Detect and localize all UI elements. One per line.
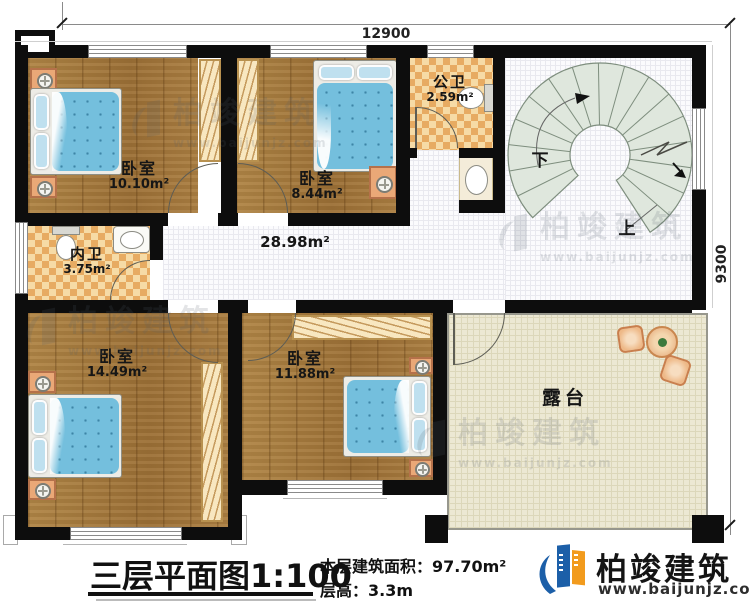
dimension-top-value: 12900 [336, 26, 436, 42]
floor-height-value: 3.3m [368, 581, 413, 600]
room-name: 内卫 [47, 246, 127, 263]
wall-hall-bottom-c [296, 300, 433, 313]
brand-url: www.baijunjz.com [598, 580, 750, 598]
floor-height-line: 层高：3.3m [320, 577, 413, 601]
room-area: 11.88m² [255, 368, 355, 383]
floor-area-line: 本层建筑面积：97.70m² [320, 553, 506, 577]
terrace-post-right [692, 515, 724, 543]
floor-area-value: 97.70m² [432, 557, 506, 576]
dimension-line-top [62, 24, 730, 25]
window-top-2 [270, 45, 367, 58]
eave-line-right [712, 45, 713, 308]
window-sill-bottom-mid [283, 498, 387, 499]
room-name: 露台 [515, 388, 615, 410]
wall-hall-bottom-e [505, 300, 692, 313]
wall-niche-bottom [459, 200, 505, 213]
wardrobe [292, 315, 432, 340]
nightstand [28, 371, 56, 393]
wall-hall-bottom-a [15, 300, 168, 313]
room-name: 卧室 [89, 160, 189, 178]
window-right-stair [692, 108, 706, 190]
wardrobe [201, 362, 223, 522]
dimension-ext-top-left [62, 2, 63, 30]
floor-height-label: 层高： [320, 581, 368, 600]
toilet [52, 226, 80, 235]
bed [343, 376, 431, 457]
nightstand [369, 166, 397, 199]
room-area: 2.59m² [410, 91, 490, 105]
room-area: 14.49m² [67, 366, 167, 381]
room-area: 10.10m² [89, 178, 189, 193]
room-area: 8.44m² [267, 188, 367, 203]
window-top-bath [427, 45, 474, 58]
label-terrace: 露台 [515, 388, 615, 410]
window-sill-bottom-left [63, 544, 187, 545]
wall-public-bath-bottom-a [408, 148, 417, 158]
label-public-bath: 公卫 2.59m² [410, 74, 490, 105]
dimension-right-value: 9300 [714, 236, 730, 292]
wall-mid-horizontal-a [15, 213, 168, 226]
wall-bedroom-bm-bottom-a [242, 480, 287, 495]
wardrobe [237, 59, 259, 162]
wall-bedroom2-east [396, 58, 410, 226]
bed [28, 394, 122, 478]
label-stairs-down: 下 [525, 152, 555, 172]
wall-bedroom-bm-east [433, 300, 447, 495]
nightstand [30, 68, 57, 90]
room-area: 28.98m² [245, 234, 345, 251]
label-hall-area: 28.98m² [245, 234, 345, 251]
room-name: 卧室 [267, 170, 367, 188]
door-leaf-terrace [453, 313, 455, 365]
nightstand [28, 479, 56, 500]
label-bedroom-top-left: 卧室 10.10m² [89, 160, 189, 193]
room-name: 卧室 [67, 348, 167, 366]
label-bedroom-bottom-mid: 卧室 11.88m² [255, 350, 355, 383]
floor-area-label: 本层建筑面积： [320, 557, 432, 576]
window-bottom-left [70, 527, 182, 540]
wall-hall-bottom-b [218, 300, 248, 313]
room-area: 3.75m² [47, 263, 127, 277]
room-name: 公卫 [410, 74, 490, 91]
bed [313, 60, 397, 172]
title-underline-thick [88, 592, 313, 596]
room-name: 卧室 [255, 350, 355, 368]
door-leaf-public-bath [415, 107, 417, 148]
wardrobe [199, 59, 221, 162]
window-bottom-mid [287, 480, 383, 495]
terrace-table [646, 326, 678, 358]
floor-plan: 12900 9300 卧室 10.10m² 卧室 8.44m² 公卫 2.59m… [0, 0, 750, 605]
nightstand [409, 459, 433, 477]
window-top-1 [88, 45, 187, 58]
plan-title-text: 三层平面图 [90, 557, 250, 595]
wall-mid-horizontal-b [218, 213, 238, 226]
label-private-bath: 内卫 3.75m² [47, 246, 127, 277]
terrace-post-left [425, 515, 448, 543]
wall-center-vertical [228, 300, 242, 540]
wall-top-bedrooms-divider [221, 58, 237, 226]
plan-title: 三层平面图1:100 [90, 551, 352, 597]
label-stairs-up: 上 [612, 220, 642, 240]
label-bedroom-top-mid: 卧室 8.44m² [267, 170, 367, 203]
wall-public-bath-stair-divider [493, 58, 505, 213]
sink-niche [459, 157, 493, 201]
wall-private-bath-east [150, 213, 163, 260]
nightstand [30, 176, 57, 198]
window-left-bath [15, 222, 28, 294]
label-bedroom-bottom-left: 卧室 14.49m² [67, 348, 167, 381]
terrace-chair [616, 324, 645, 353]
dimension-line-right [730, 24, 731, 535]
wall-bedroom-bm-bottom-b [383, 480, 447, 495]
wall-mid-horizontal-c [288, 213, 410, 226]
brand-logo-icon [534, 538, 592, 600]
wall-public-bath-bottom-b [459, 148, 493, 158]
nightstand [409, 357, 433, 374]
title-underline-thin [96, 599, 316, 601]
